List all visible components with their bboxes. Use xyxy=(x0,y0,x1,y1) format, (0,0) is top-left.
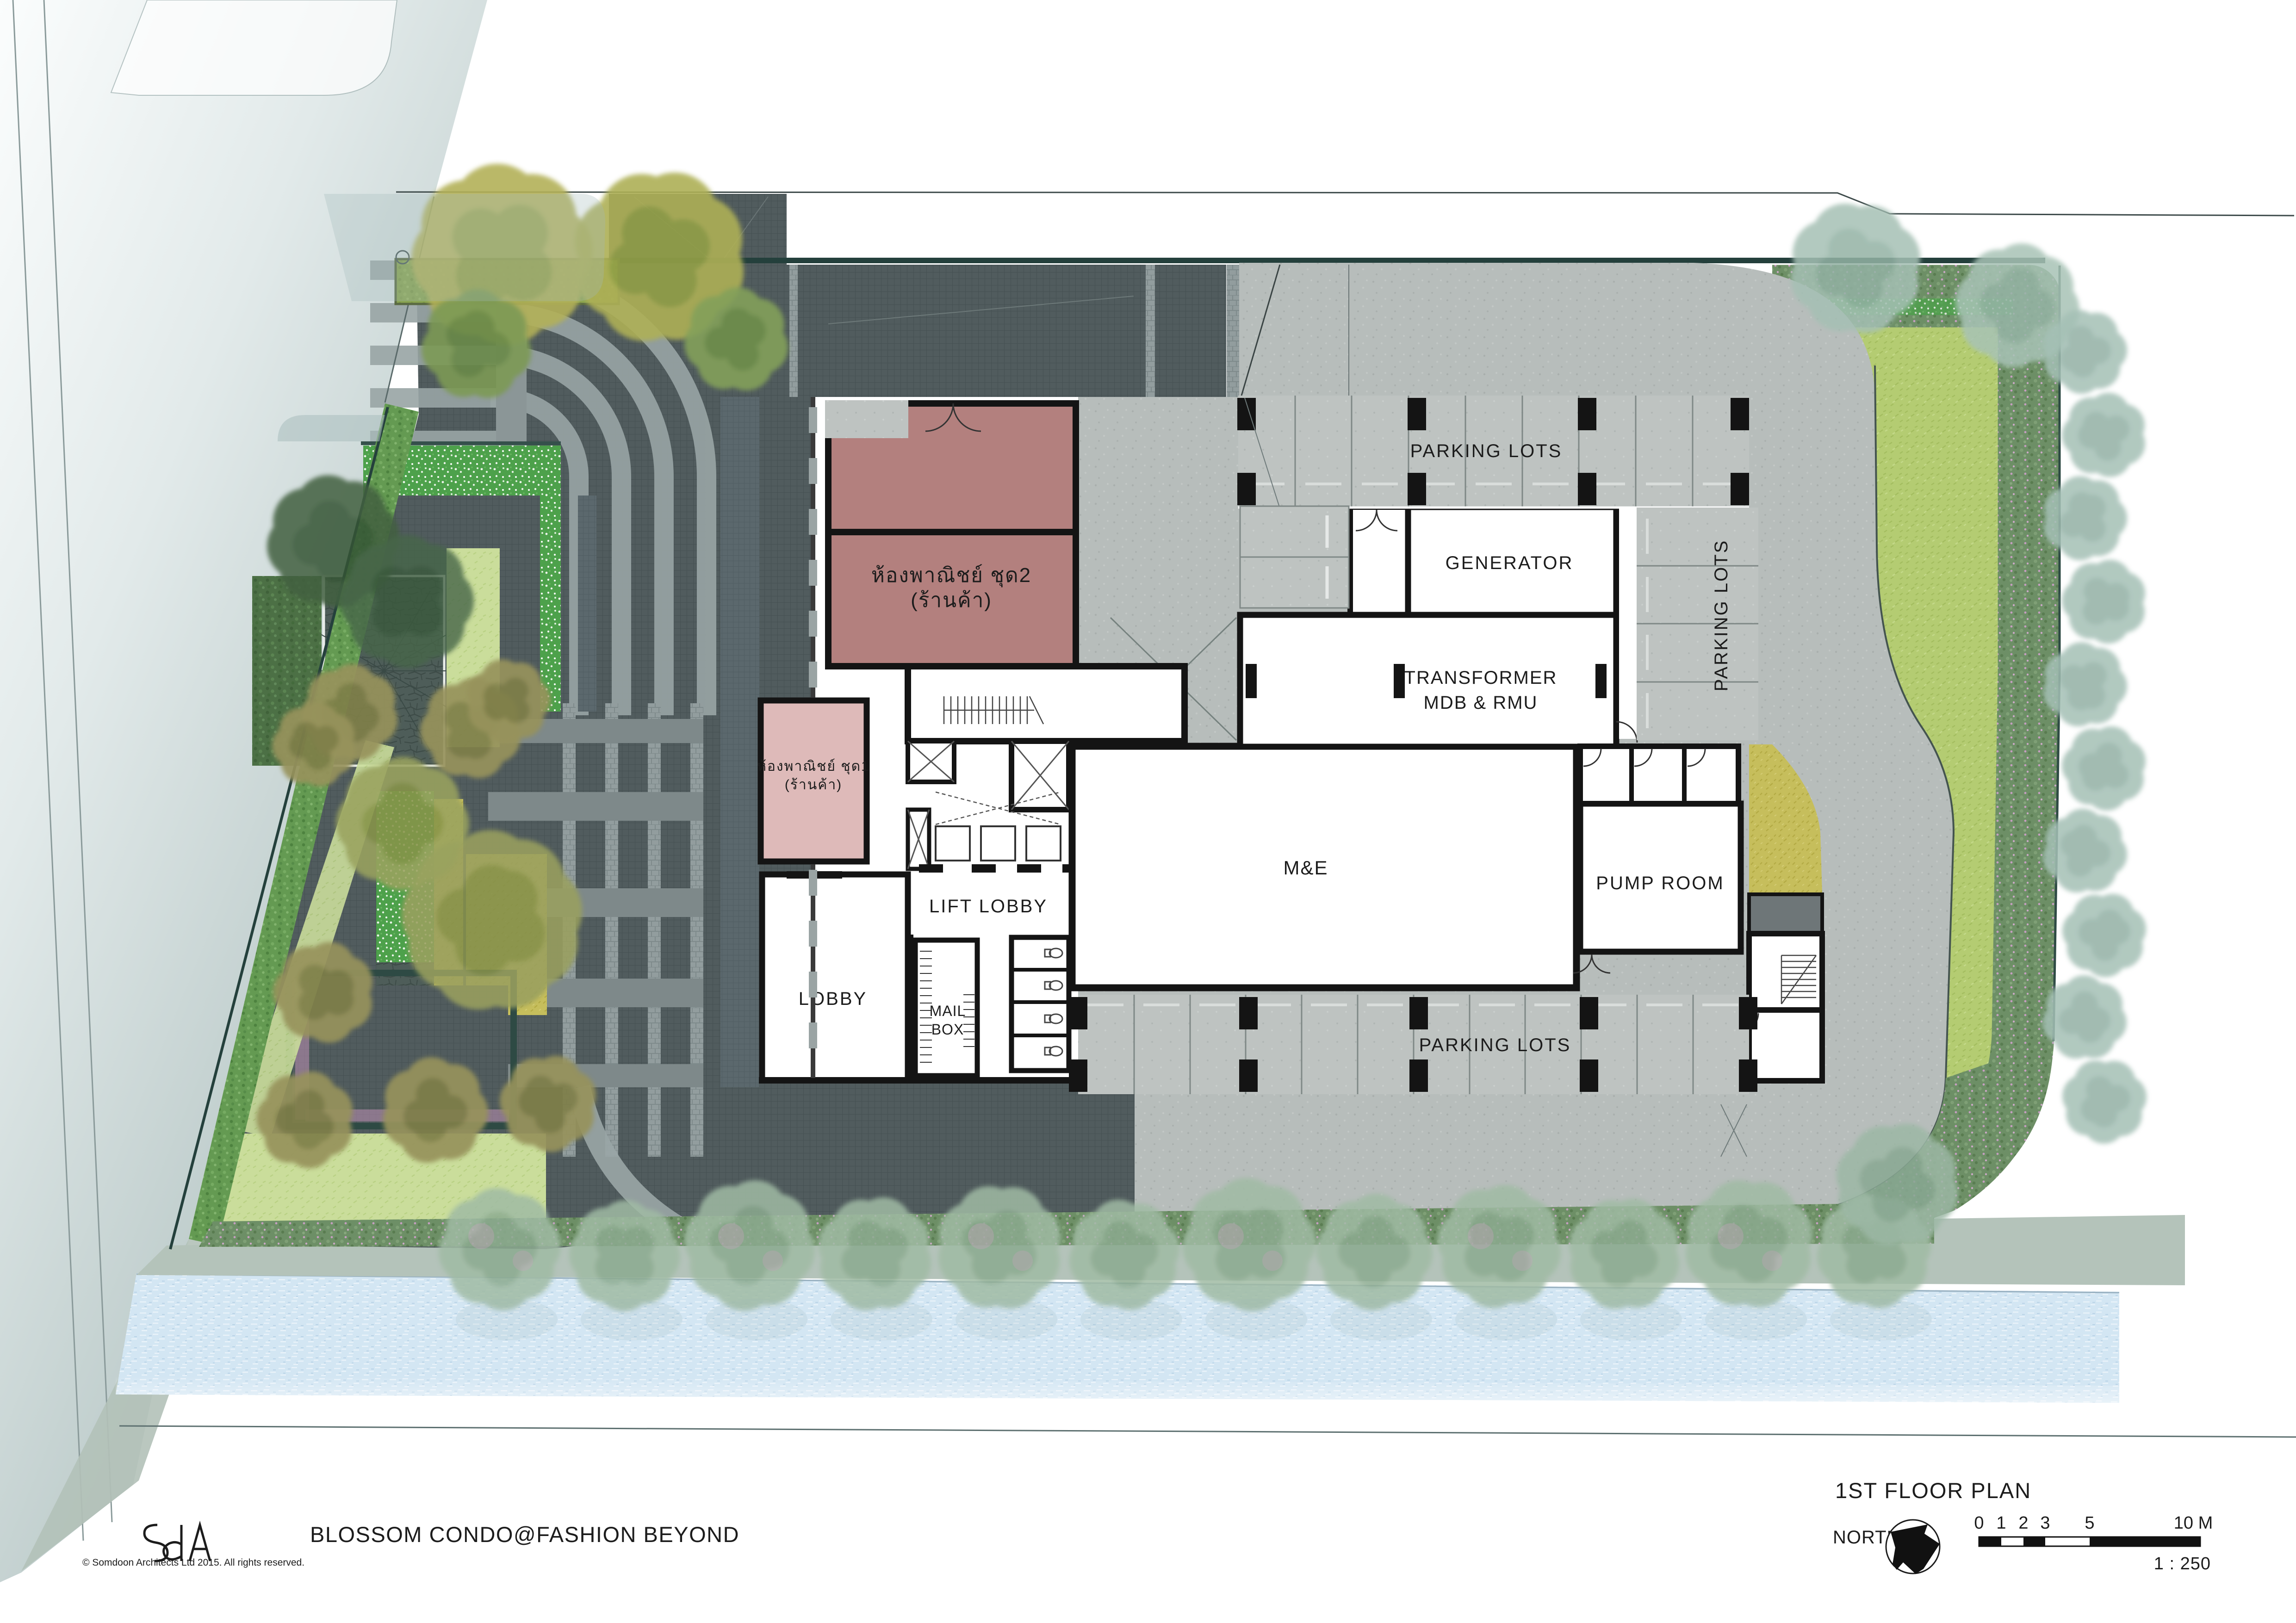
svg-text:PARKING LOTS: PARKING LOTS xyxy=(1711,539,1731,692)
svg-text:1 : 250: 1 : 250 xyxy=(2154,1554,2211,1573)
svg-text:3: 3 xyxy=(2040,1513,2050,1533)
svg-text:1: 1 xyxy=(1996,1513,2006,1533)
svg-text:MAIL: MAIL xyxy=(930,1003,966,1019)
svg-text:LIFT LOBBY: LIFT LOBBY xyxy=(929,896,1048,917)
svg-text:10 M: 10 M xyxy=(2174,1513,2213,1533)
svg-text:GENERATOR: GENERATOR xyxy=(1446,553,1574,573)
svg-text:5: 5 xyxy=(2085,1513,2094,1533)
svg-text:PARKING LOTS: PARKING LOTS xyxy=(1410,441,1563,461)
svg-text:ห้องพาณิชย์ ชุด1: ห้องพาณิชย์ ชุด1 xyxy=(757,758,870,775)
svg-text:TRANSFORMER: TRANSFORMER xyxy=(1404,668,1558,688)
svg-text:BLOSSOM CONDO@FASHION BEYOND: BLOSSOM CONDO@FASHION BEYOND xyxy=(310,1522,739,1547)
svg-text:PUMP ROOM: PUMP ROOM xyxy=(1596,873,1724,893)
svg-text:PARKING LOTS: PARKING LOTS xyxy=(1419,1035,1571,1055)
svg-text:MDB & RMU: MDB & RMU xyxy=(1424,693,1538,713)
svg-text:2: 2 xyxy=(2018,1513,2028,1533)
svg-text:0: 0 xyxy=(1974,1513,1984,1533)
svg-text:BOX: BOX xyxy=(931,1021,964,1038)
svg-text:© Somdoon Architects Ltd 2015.: © Somdoon Architects Ltd 2015. All right… xyxy=(82,1557,304,1568)
svg-text:M&E: M&E xyxy=(1283,857,1328,879)
svg-text:1ST FLOOR PLAN: 1ST FLOOR PLAN xyxy=(1835,1478,2031,1503)
svg-text:(ร้านค้า): (ร้านค้า) xyxy=(911,589,992,612)
svg-text:ห้องพาณิชย์ ชุด2: ห้องพาณิชย์ ชุด2 xyxy=(871,564,1031,588)
svg-text:(ร้านค้า): (ร้านค้า) xyxy=(785,777,842,793)
